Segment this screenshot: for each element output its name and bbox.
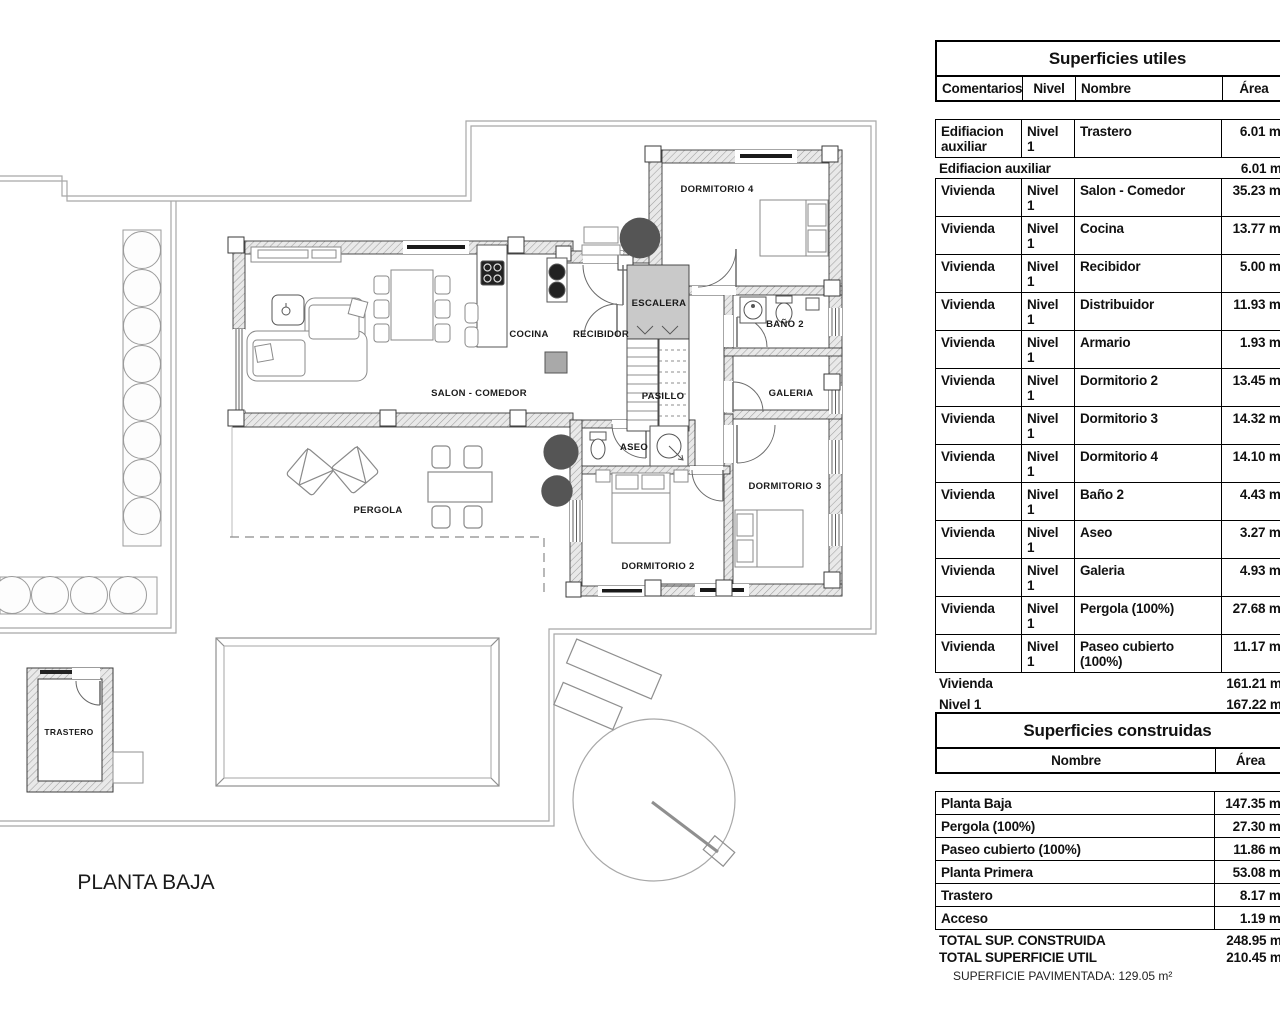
table-row: ViviendaNivel 1Distribuidor11.93 m² xyxy=(935,292,1280,331)
table-row: ViviendaNivel 1Recibidor5.00 m² xyxy=(935,254,1280,293)
floor-plan: circle{r:18.5px} xyxy=(0,0,935,1024)
table-cell: Armario xyxy=(1074,331,1221,368)
table-cell: 3.27 m² xyxy=(1221,521,1280,558)
table-cell: Paseo cubierto (100%) xyxy=(936,838,1214,860)
paved-surface-note: SUPERFICIE PAVIMENTADA: 129.05 m² xyxy=(953,969,1172,983)
table-row: ViviendaNivel 1Dormitorio 213.45 m² xyxy=(935,368,1280,407)
table-row: ViviendaNivel 1Aseo3.27 m² xyxy=(935,520,1280,559)
table-cell: Distribuidor xyxy=(1074,293,1221,330)
table-row: Edifiacion auxiliarNivel 1Trastero6.01 m… xyxy=(935,119,1280,158)
table-row: ViviendaNivel 1Dormitorio 414.10 m² xyxy=(935,444,1280,483)
table-row: Acceso1.19 m² xyxy=(935,906,1280,930)
label-salon: SALON - COMEDOR xyxy=(431,388,527,399)
table-cell: Planta Primera xyxy=(936,861,1214,883)
living-furniture xyxy=(247,247,450,381)
col-comentarios: Comentarios xyxy=(937,77,1022,100)
table-row: Edifiacion auxiliar6.01 m² xyxy=(935,158,1280,179)
table-cell: 13.77 m² xyxy=(1221,217,1280,254)
label-galeria: GALERIA xyxy=(769,388,814,399)
label-banio2: BAÑO 2 xyxy=(766,319,804,330)
table-cell: 8.17 m² xyxy=(1214,884,1280,906)
table-row: ViviendaNivel 1Salon - Comedor35.23 m² xyxy=(935,178,1280,217)
hedge-horizontal xyxy=(0,577,157,615)
col-area: Área xyxy=(1215,749,1280,772)
table-cell: Nivel 1 xyxy=(1021,559,1074,596)
table-cell: 1.93 m² xyxy=(1221,331,1280,368)
table-cell: Nivel 1 xyxy=(1021,597,1074,634)
table-cell: 27.68 m² xyxy=(1221,597,1280,634)
table-cell: 161.21 m² xyxy=(1210,676,1280,691)
table-cell: Baño 2 xyxy=(1074,483,1221,520)
table-cell: Nivel 1 xyxy=(1021,217,1074,254)
table-cell: Vivienda xyxy=(936,559,1021,596)
table-cell: Dormitorio 2 xyxy=(1074,369,1221,406)
table-cell: Nivel 1 xyxy=(1021,407,1074,444)
label-trastero: TRASTERO xyxy=(44,727,93,737)
table-cell: Vivienda xyxy=(936,369,1021,406)
stairs xyxy=(627,265,689,431)
table-cell: 27.30 m² xyxy=(1214,815,1280,837)
table-cell: Nivel 1 xyxy=(1021,293,1074,330)
table-cell: Paseo cubierto (100%) xyxy=(1074,635,1221,672)
table-row: Planta Baja147.35 m² xyxy=(935,791,1280,815)
table-row: Vivienda161.21 m² xyxy=(935,673,1280,694)
label-escalera: ESCALERA xyxy=(632,298,687,309)
table-cell: 13.45 m² xyxy=(1221,369,1280,406)
col-nombre: Nombre xyxy=(937,749,1215,772)
table-header: Nombre Área xyxy=(935,747,1280,774)
table-cell: 14.32 m² xyxy=(1221,407,1280,444)
table-cell: 4.93 m² xyxy=(1221,559,1280,596)
col-nivel: Nivel xyxy=(1022,77,1075,100)
table-cell: Recibidor xyxy=(1074,255,1221,292)
label-dormitorio4: DORMITORIO 4 xyxy=(680,184,754,195)
label-dormitorio3: DORMITORIO 3 xyxy=(748,481,821,492)
table-cell: Nivel 1 xyxy=(1021,255,1074,292)
table-row: ViviendaNivel 1Pergola (100%)27.68 m² xyxy=(935,596,1280,635)
table-title: Superficies construidas xyxy=(935,712,1280,747)
table-cell: Trastero xyxy=(936,884,1214,906)
table-row: ViviendaNivel 1Paseo cubierto (100%)11.1… xyxy=(935,634,1280,673)
table-cell: Edifiacion auxiliar xyxy=(935,161,1210,176)
table-cell: 11.93 m² xyxy=(1221,293,1280,330)
label-pergola: PERGOLA xyxy=(353,505,402,516)
table-cell: 5.00 m² xyxy=(1221,255,1280,292)
table-cell: Vivienda xyxy=(936,217,1021,254)
table-row: TOTAL SUP. CONSTRUIDA248.95 m² xyxy=(935,930,1280,951)
table-cell: Vivienda xyxy=(936,483,1021,520)
table-cell: 11.86 m² xyxy=(1214,838,1280,860)
table-cell: Aseo xyxy=(1074,521,1221,558)
table-cell: Nivel 1 xyxy=(1021,483,1074,520)
table-body: Planta Baja147.35 m²Pergola (100%)27.30 … xyxy=(935,791,1280,951)
pool xyxy=(216,638,499,786)
table-cell: 6.01 m² xyxy=(1221,120,1280,157)
table-cell: Vivienda xyxy=(936,635,1021,672)
table-cell: Pergola (100%) xyxy=(936,815,1214,837)
col-area: Área xyxy=(1222,77,1280,100)
table-cell: TOTAL SUP. CONSTRUIDA xyxy=(935,933,1210,948)
table-cell: Pergola (100%) xyxy=(1074,597,1221,634)
table-cell: Nivel 1 xyxy=(1021,331,1074,368)
table-cell: 14.10 m² xyxy=(1221,445,1280,482)
label-aseo: ASEO xyxy=(620,442,648,453)
table-cell: Nivel 1 xyxy=(1021,635,1074,672)
table-cell: Nivel 1 xyxy=(1021,179,1074,216)
table-cell: 4.43 m² xyxy=(1221,483,1280,520)
table-cell: Vivienda xyxy=(936,407,1021,444)
table-cell: 35.23 m² xyxy=(1221,179,1280,216)
table-row: ViviendaNivel 1Armario1.93 m² xyxy=(935,330,1280,369)
table-cell: Nivel 1 xyxy=(1021,445,1074,482)
table-cell: Vivienda xyxy=(936,521,1021,558)
table-cell: Vivienda xyxy=(936,445,1021,482)
table-cell: Vivienda xyxy=(936,179,1021,216)
kitchen-fixtures xyxy=(465,245,567,373)
table-cell: Vivienda xyxy=(936,597,1021,634)
table-row: ViviendaNivel 1Dormitorio 314.32 m² xyxy=(935,406,1280,445)
table-cell: Dormitorio 3 xyxy=(1074,407,1221,444)
table-cell: Edifiacion auxiliar xyxy=(936,120,1021,157)
col-nombre: Nombre xyxy=(1075,77,1222,100)
plan-title: PLANTA BAJA xyxy=(77,871,214,894)
table-cell: Nivel 1 xyxy=(1021,120,1074,157)
table-row: ViviendaNivel 1Cocina13.77 m² xyxy=(935,216,1280,255)
table-superficies-construidas: Superficies construidas Nombre Área Plan… xyxy=(935,712,1280,951)
label-dormitorio2: DORMITORIO 2 xyxy=(621,561,694,572)
table-row: ViviendaNivel 1Baño 24.43 m² xyxy=(935,482,1280,521)
table-cell: Trastero xyxy=(1074,120,1221,157)
table-cell: Dormitorio 4 xyxy=(1074,445,1221,482)
table-cell: 11.17 m² xyxy=(1221,635,1280,672)
table-cell: Nivel 1 xyxy=(1021,521,1074,558)
table-cell: Nivel 1 xyxy=(1021,369,1074,406)
table-cell: Nivel 1 xyxy=(935,697,1210,712)
table-row: ViviendaNivel 1Galeria4.93 m² xyxy=(935,558,1280,597)
label-recibidor: RECIBIDOR xyxy=(573,329,629,340)
table-cell: Galeria xyxy=(1074,559,1221,596)
table-cell: 210.45 m² xyxy=(1210,950,1280,965)
table-cell: 1.19 m² xyxy=(1214,907,1280,929)
table-cell: Vivienda xyxy=(936,331,1021,368)
table-cell: Vivienda xyxy=(936,255,1021,292)
table-header: Comentarios Nivel Nombre Área xyxy=(935,75,1280,102)
hedge-vertical xyxy=(123,230,161,546)
table-cell: Vivienda xyxy=(935,676,1210,691)
table-row: Trastero8.17 m² xyxy=(935,883,1280,907)
table-cell: Cocina xyxy=(1074,217,1221,254)
table-title: Superficies utiles xyxy=(935,40,1280,75)
table-cell: TOTAL SUPERFICIE UTIL xyxy=(935,950,1210,965)
table-cell: 248.95 m² xyxy=(1210,933,1280,948)
table-row: Pergola (100%)27.30 m² xyxy=(935,814,1280,838)
label-cocina: COCINA xyxy=(509,329,548,340)
label-pasillo: PASILLO xyxy=(642,391,685,402)
table-cell: 147.35 m² xyxy=(1214,792,1280,814)
table-cell: Planta Baja xyxy=(936,792,1214,814)
table-cell: Vivienda xyxy=(936,293,1021,330)
table-cell: 167.22 m² xyxy=(1210,697,1280,712)
table-cell: Acceso xyxy=(936,907,1214,929)
table-row: Planta Primera53.08 m² xyxy=(935,860,1280,884)
table-cell: 53.08 m² xyxy=(1214,861,1280,883)
table-cell: 6.01 m² xyxy=(1210,161,1280,176)
table-row: Paseo cubierto (100%)11.86 m² xyxy=(935,837,1280,861)
table-cell: Salon - Comedor xyxy=(1074,179,1221,216)
round-structure xyxy=(554,639,735,881)
entrance-steps xyxy=(582,227,620,255)
